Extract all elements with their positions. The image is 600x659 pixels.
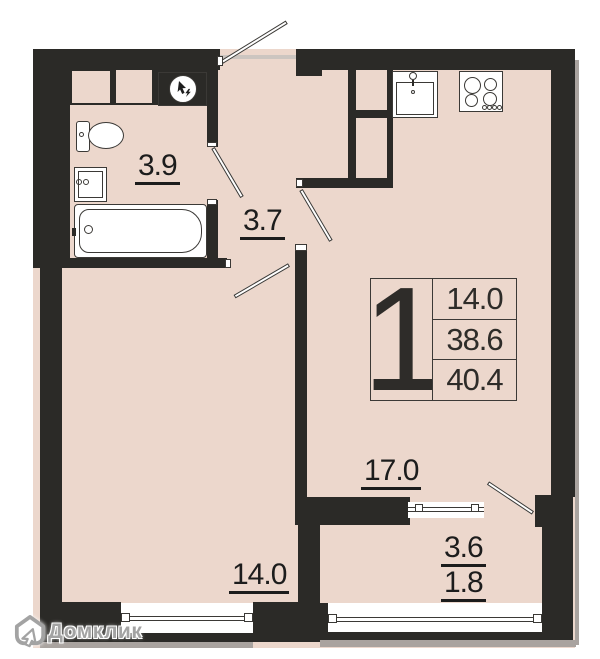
wall (296, 70, 322, 76)
kitchen-sink-inner (396, 82, 434, 115)
window-cap (244, 613, 253, 622)
domclick-house-icon (14, 614, 46, 650)
wall (298, 525, 320, 610)
window-cap (415, 504, 423, 512)
stove-knob (497, 105, 502, 110)
window-cap (533, 614, 542, 623)
window-cap (471, 504, 479, 512)
kitchen-sink-tap (409, 72, 417, 80)
stove-burner (483, 92, 497, 106)
wall (320, 632, 573, 640)
wall (348, 110, 393, 118)
floor-plan: 3.9 3.7 17.0 14.0 3.6 1.8 1 14.0 38.6 40… (0, 0, 600, 659)
door-jamb (217, 56, 223, 66)
wall (207, 70, 218, 147)
door-jamb (207, 142, 217, 147)
wall (551, 49, 575, 497)
apartment-area-value: 38.6 (433, 319, 516, 360)
shaft-niche (116, 70, 152, 103)
wall (320, 603, 328, 632)
area-label-kitchen-living: 17.0 (361, 456, 421, 490)
living-area-value: 14.0 (433, 279, 516, 319)
door-jamb (225, 259, 231, 268)
washbasin-inner (78, 171, 103, 198)
window-balcony-pane (329, 617, 541, 622)
domclick-watermark: Домклик (14, 614, 142, 650)
door-jamb (296, 179, 303, 187)
domclick-brand-text: Домклик (48, 620, 142, 644)
wall (40, 260, 62, 642)
stove-burner (484, 78, 497, 91)
area-label-hallway: 3.7 (240, 206, 285, 240)
wall (535, 495, 551, 527)
kitchen-sink-dot (411, 90, 415, 94)
window-cap (328, 614, 337, 623)
electric-panel-icon (158, 72, 207, 106)
rooms-count-value: 1 (371, 280, 433, 400)
apartment-info-box: 1 14.0 38.6 40.4 (370, 278, 517, 401)
stove-burner (464, 77, 481, 94)
door-jamb (207, 199, 217, 205)
plan-shadow (575, 60, 579, 645)
area-label-bathroom: 3.9 (135, 151, 180, 185)
kitchen-sink-tap-stem (412, 80, 414, 86)
total-area-value: 40.4 (433, 359, 516, 400)
toilet-bowl (88, 122, 124, 149)
area-label-bedroom: 14.0 (229, 560, 289, 594)
door-jamb (295, 244, 307, 251)
area-label-balcony-a: 3.6 (441, 533, 486, 567)
washbasin-tap (83, 179, 89, 185)
toilet-flush-dot (79, 132, 84, 137)
wall (296, 178, 393, 188)
wall (348, 67, 356, 188)
shaft-niche (72, 71, 110, 103)
rooms-count: 1 (371, 279, 433, 400)
stove-burner (465, 94, 478, 107)
wall (296, 49, 575, 70)
area-label-balcony-b: 1.8 (441, 568, 486, 602)
wall (295, 497, 410, 525)
plan-shadow (320, 640, 576, 647)
washbasin-tap (76, 179, 82, 185)
bathtub-tap (72, 228, 76, 236)
bathtub-drain (84, 225, 93, 234)
wall (295, 250, 307, 497)
bathtub-inner (79, 209, 202, 253)
wall (62, 258, 227, 268)
